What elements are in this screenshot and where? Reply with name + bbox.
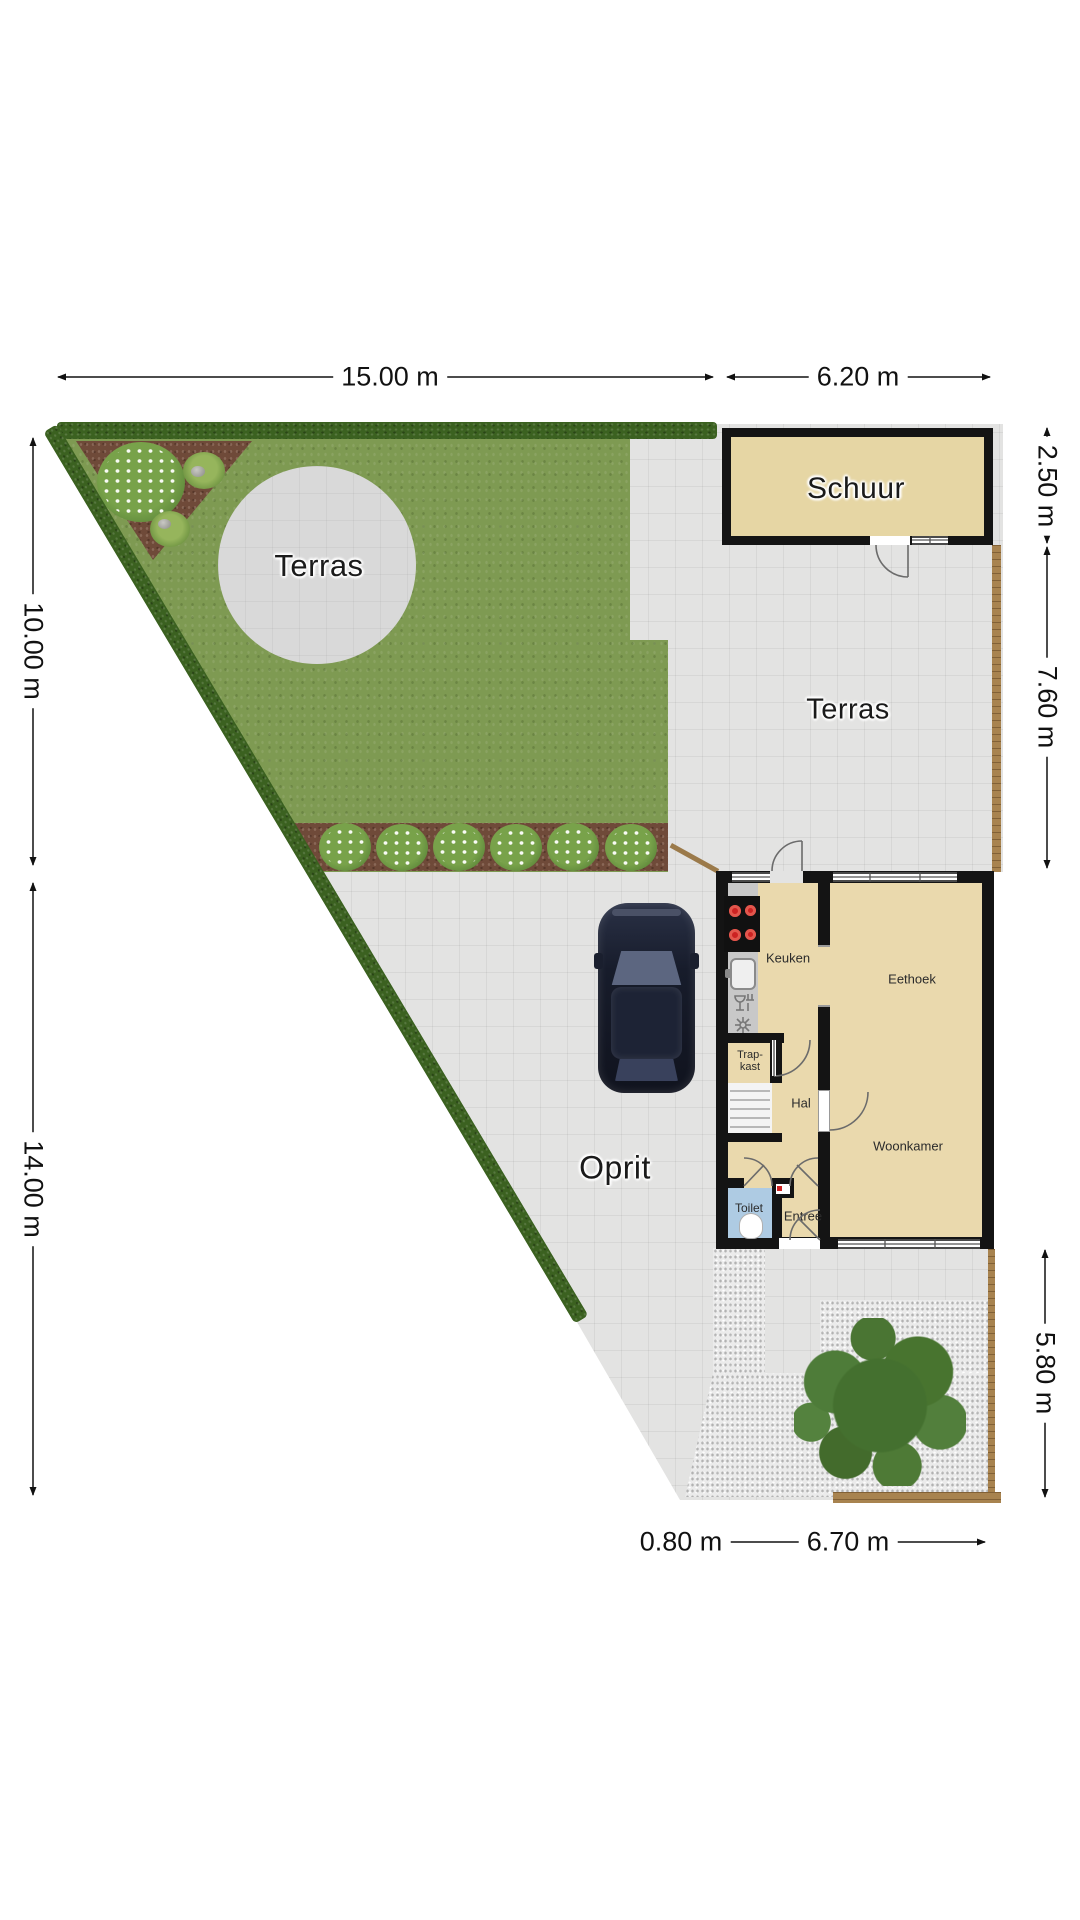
shed-door-opening [870,536,910,545]
dim-side-strip-width: 0.80 m [632,1526,731,1559]
front-door-opening [779,1238,820,1249]
meter-cupboard-switch [777,1186,782,1191]
dining-label: Eethoek [888,972,936,987]
entrance-label: Entree [784,1209,822,1224]
flower-bush-icon [547,823,599,871]
kitchen-window [732,872,770,882]
grass-tuft-icon [150,511,190,547]
shed-window [912,536,948,545]
flower-bush-icon [319,823,371,871]
stair-closet-label-line2: kast [737,1061,763,1073]
dim-garden-width: 15.00 m [333,361,447,394]
sink-icon [730,958,756,990]
living-window [838,1239,980,1249]
stair-closet-label: Trap- kast [737,1049,763,1073]
stairs-bottom-wall [728,1133,782,1142]
rock-icon [158,519,171,529]
top-hedge [57,422,717,439]
stairs-icon [728,1083,772,1135]
flower-bush-icon [376,824,428,871]
gravel-strip-left [713,1248,765,1373]
sink-faucet [725,969,732,978]
driveway-label: Oprit [579,1150,651,1187]
dim-shed-width: 6.20 m [809,361,908,394]
kitchen-dining-opening [818,945,830,1007]
hallway-label: Hal [791,1096,811,1111]
dim-house-width: 6.70 m [799,1526,898,1559]
garden-terrace-label: Terras [274,548,363,584]
stair-closet-wall [770,1033,782,1083]
right-fence [992,545,1001,872]
paved-terrace-label: Terras [806,694,890,727]
site-plan: Terras Schuur Terras Oprit Keuken Eethoe… [0,0,1080,1920]
interior-wall [818,883,830,1237]
shed-label: Schuur [807,472,905,506]
kitchen-door-opening [770,871,803,883]
kitchen-label: Keuken [766,951,810,966]
house-floor [728,883,982,1237]
dining-window [833,872,957,882]
flower-bush-icon [605,824,657,871]
dim-driveway-depth: 14.00 m [17,1132,50,1246]
car-icon [598,903,695,1093]
living-label: Woonkamer [873,1139,943,1154]
stair-closet-label-line1: Trap- [737,1049,763,1061]
cooktop-icon [724,896,760,952]
toilet-bowl-icon [740,1214,762,1238]
hall-living-door-opening [818,1090,830,1132]
tree-icon [794,1318,966,1486]
dim-backyard-depth: 5.80 m [1029,1324,1062,1423]
dim-shed-depth: 2.50 m [1031,437,1064,536]
lower-right-fence [988,1249,995,1499]
flower-bush-icon [433,823,485,871]
flower-bush-icon [97,442,185,522]
flower-bush-icon [490,824,542,871]
dim-terrace-depth: 7.60 m [1031,658,1064,757]
bottom-fence [833,1492,1001,1503]
hall-south-wall-left [728,1178,744,1188]
toilet-label: Toilet [735,1201,763,1215]
rock-icon [191,466,205,477]
dim-garden-depth: 10.00 m [17,594,50,708]
